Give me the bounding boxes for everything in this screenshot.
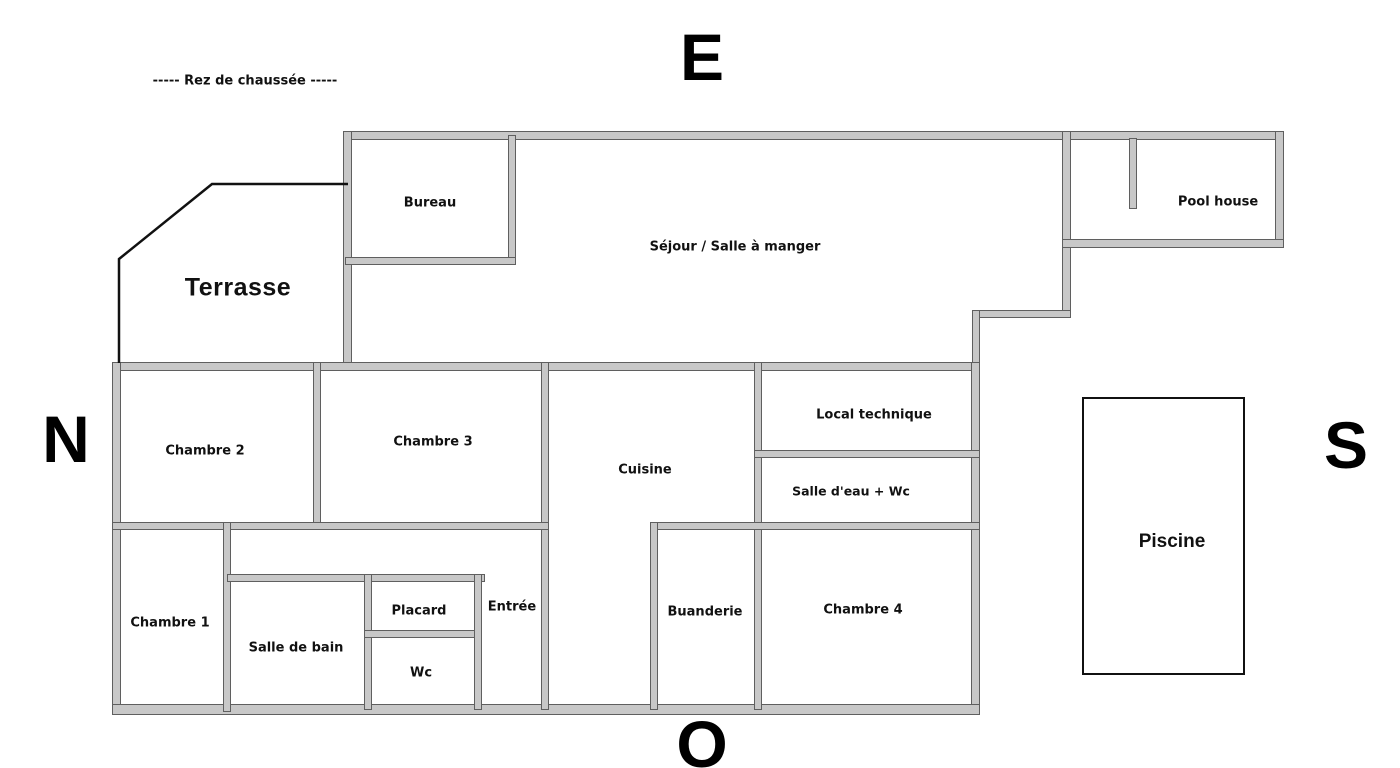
floorplan-canvas: ----- Rez de chaussée ----- E N S O Bure… xyxy=(0,0,1400,768)
room-label-salle-de-bain: Salle de bain xyxy=(249,641,344,656)
room-label-cuisine: Cuisine xyxy=(618,463,672,478)
room-label-placard: Placard xyxy=(392,604,447,619)
wall-entree-west xyxy=(474,574,482,710)
wall-lower-east xyxy=(971,362,980,715)
room-label-wc: Wc xyxy=(410,666,432,681)
wall-sejour-west xyxy=(343,131,352,371)
room-label-sejour: Séjour / Salle à manger xyxy=(650,240,821,255)
wall-lower-west xyxy=(112,362,121,715)
wall-hall-corridor xyxy=(227,574,485,582)
wall-placard-wc xyxy=(364,630,482,638)
compass-west: O xyxy=(676,706,727,768)
wall-step-horizontal xyxy=(972,310,1071,318)
room-label-piscine: Piscine xyxy=(1139,531,1206,553)
wall-chambre2-chambre3 xyxy=(313,362,321,530)
wall-top xyxy=(345,131,1284,140)
room-label-chambre3: Chambre 3 xyxy=(393,435,472,450)
wall-poolhouse-east xyxy=(1275,131,1284,248)
room-label-local-technique: Local technique xyxy=(816,408,932,423)
wall-bureau-east xyxy=(508,135,516,265)
room-label-salle-eau-wc: Salle d'eau + Wc xyxy=(792,484,910,499)
room-label-pool-house: Pool house xyxy=(1178,195,1258,210)
wall-cuisine-rightcolumn xyxy=(754,362,762,710)
wall-localtech-salledeau xyxy=(754,450,980,458)
room-label-chambre1: Chambre 1 xyxy=(130,616,209,631)
compass-east: E xyxy=(680,19,724,95)
wall-mid-horizontal-left xyxy=(112,522,549,530)
room-label-chambre4: Chambre 4 xyxy=(823,603,902,618)
wall-sejour-east xyxy=(1062,131,1071,318)
room-label-buanderie: Buanderie xyxy=(668,605,743,620)
wall-chambre3-cuisine xyxy=(541,362,549,710)
wall-bureau-bottom xyxy=(345,257,516,265)
wall-poolhouse-divider-stub xyxy=(1129,138,1137,209)
compass-south: S xyxy=(1324,407,1368,483)
plan-title: ----- Rez de chaussée ----- xyxy=(153,74,338,89)
wall-cuisine-buanderie xyxy=(650,522,658,710)
room-label-chambre2: Chambre 2 xyxy=(165,444,244,459)
room-label-terrasse: Terrasse xyxy=(185,274,291,303)
wall-salledebain-placard xyxy=(364,574,372,710)
room-label-entree: Entrée xyxy=(488,600,536,615)
wall-mid-horizontal-right xyxy=(650,522,980,530)
wall-poolhouse-bottom xyxy=(1062,239,1284,248)
wall-chambre1-hall xyxy=(223,522,231,712)
compass-north: N xyxy=(42,401,90,477)
room-label-bureau: Bureau xyxy=(404,196,456,211)
